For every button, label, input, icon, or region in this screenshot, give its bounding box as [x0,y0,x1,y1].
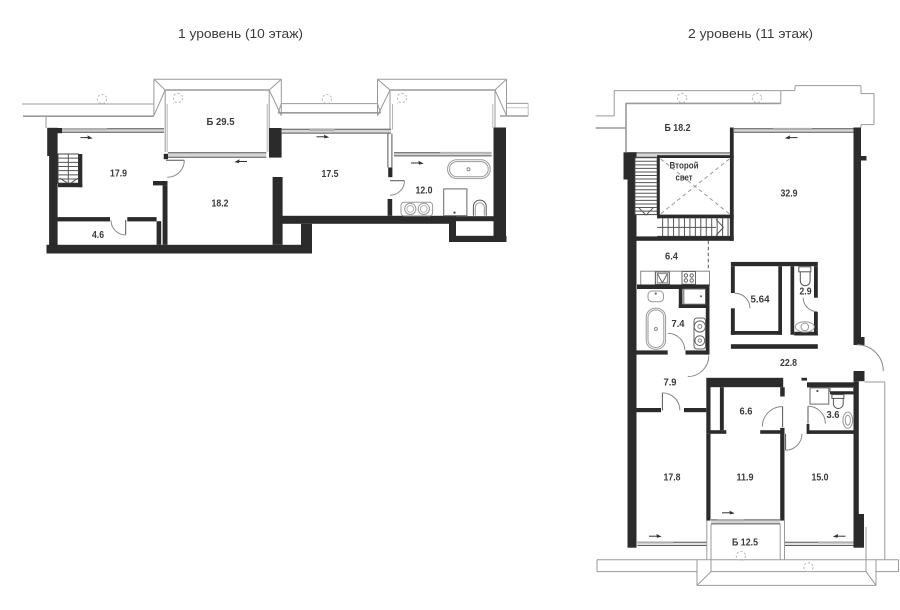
svg-text:7.4: 7.4 [672,319,686,330]
svg-text:5.64: 5.64 [751,295,771,306]
svg-text:22.8: 22.8 [780,358,797,369]
svg-text:3.6: 3.6 [827,410,841,421]
svg-text:6.4: 6.4 [665,252,679,263]
svg-text:17.8: 17.8 [664,473,681,484]
svg-text:11.9: 11.9 [737,473,755,484]
svg-text:12.0: 12.0 [416,186,433,197]
svg-text:свет: свет [676,173,694,183]
svg-text:2.9: 2.9 [800,287,812,298]
svg-text:6.6: 6.6 [740,407,754,418]
svg-text:32.9: 32.9 [781,189,798,200]
svg-text:Б 12.5: Б 12.5 [732,538,758,549]
svg-text:4.6: 4.6 [92,230,104,241]
svg-text:2 уровень (11 этаж): 2 уровень (11 этаж) [688,26,813,41]
svg-text:18.2: 18.2 [212,199,229,210]
svg-text:Б 18.2: Б 18.2 [665,123,691,134]
svg-text:15.0: 15.0 [812,473,829,484]
svg-text:1 уровень (10 этаж): 1 уровень (10 этаж) [178,26,303,41]
svg-text:17.9: 17.9 [110,169,127,180]
svg-text:Б 29.5: Б 29.5 [207,117,236,128]
svg-text:7.9: 7.9 [664,378,678,389]
svg-text:17.5: 17.5 [322,169,339,180]
svg-text:Второй: Второй [670,161,699,171]
